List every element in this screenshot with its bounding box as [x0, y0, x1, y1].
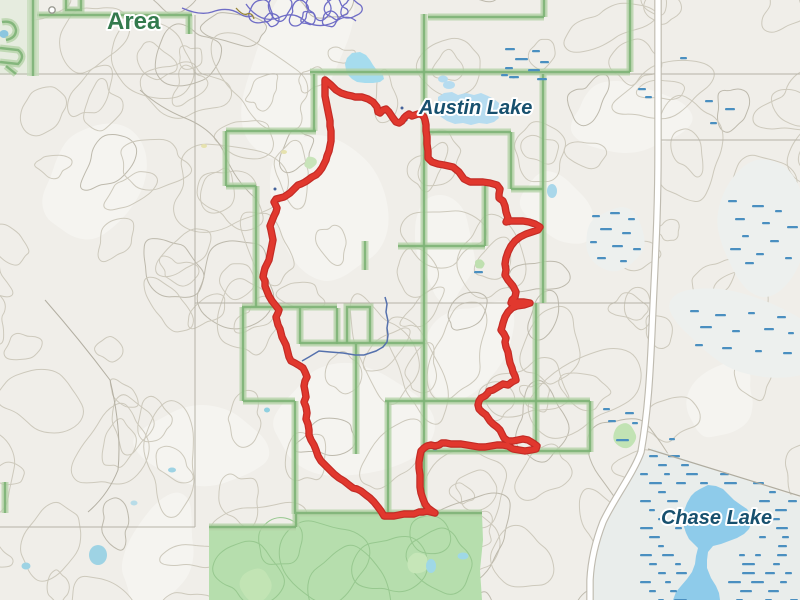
svg-text:Austin Lake: Austin Lake [418, 97, 532, 119]
svg-text:Area: Area [107, 8, 161, 35]
svg-text:Chase Lake: Chase Lake [661, 507, 772, 529]
